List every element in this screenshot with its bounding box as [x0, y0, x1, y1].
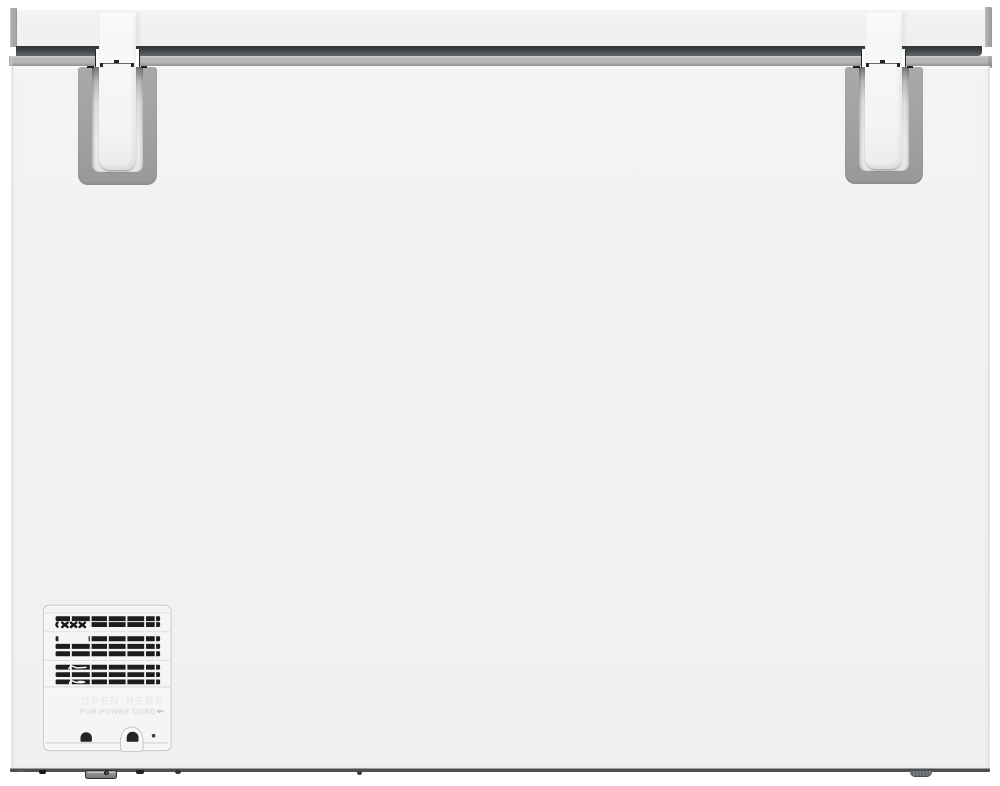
svg-text:FOR POWER CORD: FOR POWER CORD — [80, 707, 156, 716]
svg-text:OPEN HERE: OPEN HERE — [81, 696, 165, 708]
